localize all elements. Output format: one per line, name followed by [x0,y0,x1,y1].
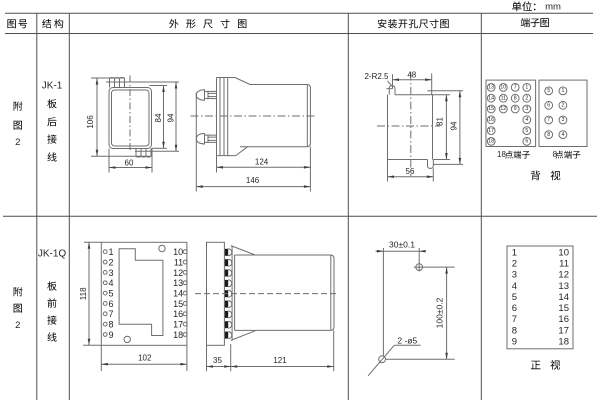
svg-text:14: 14 [558,292,569,303]
svg-text:94: 94 [450,121,459,130]
svg-text:8: 8 [512,325,517,336]
svg-text:18: 18 [488,139,494,145]
svg-text:35: 35 [213,356,222,365]
svg-text:9: 9 [109,330,114,340]
svg-text:15: 15 [173,299,183,309]
svg-text:5: 5 [525,128,528,134]
svg-text:1: 1 [561,88,564,94]
svg-text:30±0.1: 30±0.1 [389,240,415,250]
svg-text:124: 124 [255,158,269,167]
svg-text:84: 84 [154,113,163,122]
svg-text:5: 5 [547,88,550,94]
svg-text:17: 17 [488,128,494,134]
svg-text:60: 60 [125,159,134,168]
svg-text:8: 8 [547,132,550,138]
svg-text:6: 6 [547,103,550,109]
svg-text:18: 18 [558,337,569,348]
svg-text:17: 17 [558,325,569,336]
svg-text:3: 3 [512,270,517,281]
svg-text:1: 1 [512,247,517,258]
svg-text:16: 16 [173,309,183,319]
svg-text:2: 2 [109,257,114,267]
svg-text:10: 10 [500,85,506,91]
svg-text:14: 14 [488,95,494,101]
svg-text:18: 18 [173,330,183,340]
svg-text:6: 6 [525,139,528,145]
svg-text:mm: mm [545,1,561,12]
svg-text:10: 10 [558,247,569,258]
svg-text:13: 13 [488,85,494,91]
svg-text:100±0.2: 100±0.2 [435,297,445,328]
svg-text:12: 12 [173,268,183,278]
svg-text:81: 81 [435,117,444,126]
svg-text:2: 2 [525,95,528,101]
svg-text:14: 14 [173,289,183,299]
svg-text:1: 1 [109,247,114,257]
svg-text:7: 7 [547,117,550,123]
svg-text:4: 4 [512,281,517,292]
svg-text:5: 5 [109,289,114,299]
svg-text:13: 13 [558,281,569,292]
svg-text:2: 2 [561,103,564,109]
svg-text:6: 6 [512,303,517,314]
svg-text:10: 10 [173,247,183,257]
svg-text:6: 6 [109,299,114,309]
svg-text:56: 56 [406,167,415,176]
svg-text:11: 11 [174,257,183,267]
svg-text:3: 3 [109,268,114,278]
svg-text:9: 9 [514,106,517,112]
svg-text:1: 1 [525,85,528,91]
svg-text:12: 12 [558,270,569,281]
svg-text:106: 106 [86,115,95,129]
svg-text:146: 146 [246,176,260,185]
svg-text:11: 11 [501,95,506,101]
svg-text:18: 18 [497,150,506,159]
svg-text:16: 16 [488,117,494,123]
svg-text:48: 48 [407,70,416,79]
svg-text:2 -ø5: 2 -ø5 [397,335,417,345]
svg-text:3: 3 [561,117,564,123]
svg-text:15: 15 [558,303,569,314]
svg-text:8: 8 [109,320,114,330]
svg-text:9: 9 [512,337,517,348]
svg-text:JK-1: JK-1 [42,81,63,92]
svg-text:118: 118 [79,287,88,300]
svg-text:3: 3 [525,106,528,112]
svg-text:17: 17 [173,320,183,330]
svg-text:5: 5 [512,292,517,303]
svg-text:2-R2.5: 2-R2.5 [364,72,389,81]
svg-text:4: 4 [561,132,564,138]
svg-text:7: 7 [512,314,517,325]
svg-text:7: 7 [109,309,114,319]
svg-text:11: 11 [559,258,569,269]
svg-text:15: 15 [488,106,494,112]
svg-text:4: 4 [525,117,528,123]
svg-text:8: 8 [514,95,517,101]
svg-text:94: 94 [167,113,176,122]
svg-text:2: 2 [512,258,517,269]
svg-text:2: 2 [15,320,20,331]
svg-text:102: 102 [138,354,152,363]
svg-text:13: 13 [173,278,183,288]
svg-text:JK-1Q: JK-1Q [38,249,67,260]
svg-text:16: 16 [558,314,569,325]
svg-text:4: 4 [109,278,114,288]
svg-text:7: 7 [514,85,517,91]
svg-text:12: 12 [500,106,506,112]
svg-text:121: 121 [273,356,287,365]
svg-text:2: 2 [15,137,20,148]
